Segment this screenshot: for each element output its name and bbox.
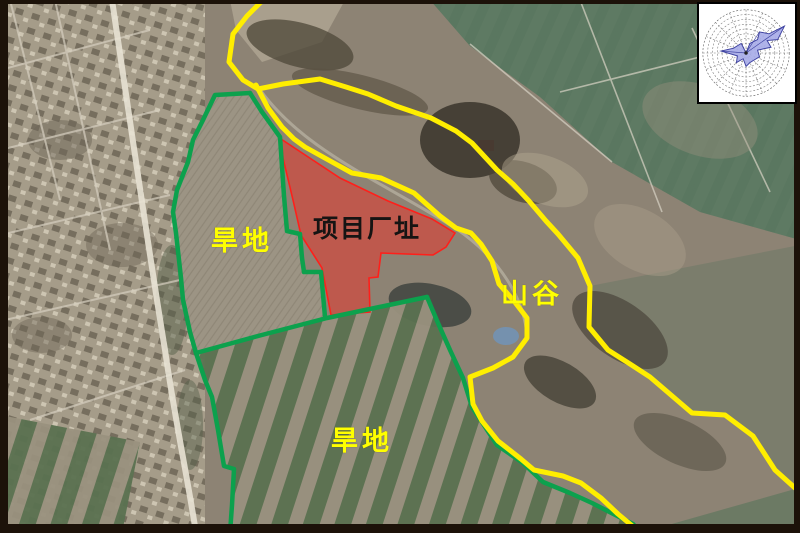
wind-rose-chart: [699, 4, 795, 102]
wind-rose-inset: [697, 2, 797, 104]
wind-rose-center: [744, 51, 747, 54]
wind-rose-lobes: [721, 26, 784, 66]
map-image: 旱地 项目厂址 山谷 旱地: [0, 0, 800, 533]
satellite-map-canvas: [0, 0, 800, 533]
pond: [493, 327, 519, 345]
